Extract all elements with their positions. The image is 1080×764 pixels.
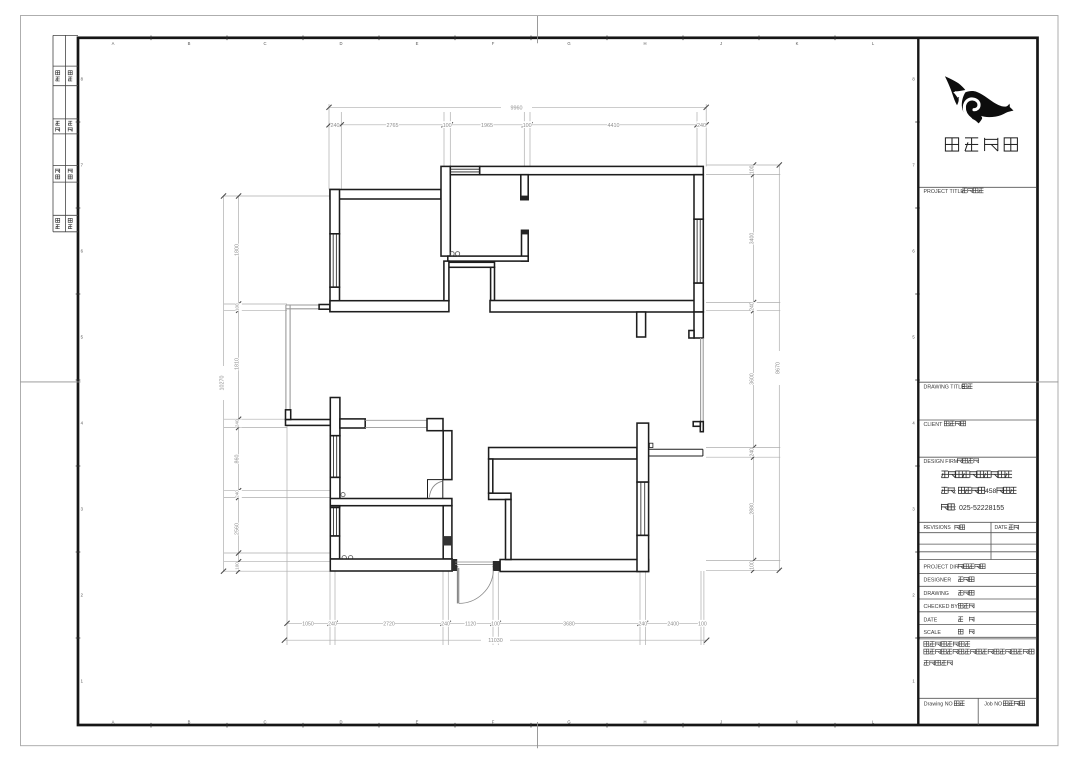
svg-text:K: K xyxy=(796,41,799,46)
svg-text:240: 240 xyxy=(638,621,647,627)
svg-text:D: D xyxy=(339,719,342,724)
svg-text:100: 100 xyxy=(491,621,500,627)
svg-text:3600: 3600 xyxy=(750,373,756,385)
svg-text:025-52228155: 025-52228155 xyxy=(959,505,1004,512)
svg-text:G: G xyxy=(567,719,570,724)
svg-text:F: F xyxy=(492,719,495,724)
svg-text:100: 100 xyxy=(443,123,452,129)
svg-text::: : xyxy=(955,488,957,495)
svg-text:Job NO: Job NO xyxy=(984,702,1002,708)
svg-text:SCALE: SCALE xyxy=(924,630,942,636)
svg-text:240: 240 xyxy=(750,302,756,311)
svg-text:B: B xyxy=(188,41,191,46)
svg-text:E: E xyxy=(416,41,419,46)
svg-text:K: K xyxy=(796,719,799,724)
svg-text:DATE: DATE xyxy=(924,617,938,623)
svg-text:1810: 1810 xyxy=(235,358,241,370)
svg-text:E: E xyxy=(416,719,419,724)
svg-text:2560: 2560 xyxy=(235,523,241,535)
svg-text:100: 100 xyxy=(235,303,240,311)
svg-text:DESIGN FIRM: DESIGN FIRM xyxy=(924,459,959,465)
svg-text:F: F xyxy=(492,41,495,46)
svg-text:240: 240 xyxy=(331,123,340,129)
svg-text:1050: 1050 xyxy=(302,621,314,627)
svg-text:PROJECT TITLE: PROJECT TITLE xyxy=(924,189,965,195)
svg-text:3400: 3400 xyxy=(750,233,756,245)
svg-text:4410: 4410 xyxy=(608,123,620,129)
svg-text:CHECKED BY: CHECKED BY xyxy=(924,604,959,610)
svg-text:H: H xyxy=(643,719,646,724)
svg-text:100: 100 xyxy=(698,621,707,627)
svg-text:240: 240 xyxy=(441,621,450,627)
svg-text:PROJECT DIR: PROJECT DIR xyxy=(924,565,959,571)
svg-text:A: A xyxy=(112,719,115,724)
svg-text::: : xyxy=(955,505,957,512)
svg-text:C: C xyxy=(263,719,266,724)
svg-text:DRAWING TITLE: DRAWING TITLE xyxy=(924,385,966,391)
svg-text:860: 860 xyxy=(235,455,241,464)
svg-text:Drawing NO: Drawing NO xyxy=(924,702,953,708)
svg-text:240: 240 xyxy=(328,621,337,627)
svg-text:REVISIONS: REVISIONS xyxy=(924,525,952,531)
svg-text:100: 100 xyxy=(750,165,756,174)
svg-text:1800: 1800 xyxy=(235,244,241,256)
svg-text:C: C xyxy=(263,41,266,46)
svg-text:2765: 2765 xyxy=(387,123,399,129)
svg-text:240: 240 xyxy=(697,123,706,129)
svg-text:J: J xyxy=(720,719,722,724)
svg-text:B: B xyxy=(188,719,191,724)
svg-text:100: 100 xyxy=(235,562,240,570)
svg-text:10270: 10270 xyxy=(220,376,226,391)
svg-text:J: J xyxy=(720,41,722,46)
svg-text:240: 240 xyxy=(235,419,240,427)
svg-text:100: 100 xyxy=(523,123,532,129)
svg-text:2880: 2880 xyxy=(750,503,756,515)
svg-text:100: 100 xyxy=(750,561,756,570)
svg-text:DRAWING: DRAWING xyxy=(924,591,949,597)
svg-text:G: G xyxy=(567,41,570,46)
svg-text:2720: 2720 xyxy=(383,621,395,627)
svg-text:8670: 8670 xyxy=(775,362,781,374)
svg-text:9960: 9960 xyxy=(511,105,523,111)
svg-text:2400: 2400 xyxy=(667,621,679,627)
svg-text:A: A xyxy=(112,41,115,46)
svg-text:D: D xyxy=(339,41,342,46)
svg-text:DATE: DATE xyxy=(995,525,1009,531)
svg-text:DESIGNER: DESIGNER xyxy=(924,578,952,584)
svg-text:240: 240 xyxy=(235,490,240,498)
svg-text:240: 240 xyxy=(750,448,756,457)
svg-text:1120: 1120 xyxy=(465,621,476,627)
svg-text:3680: 3680 xyxy=(563,621,575,627)
svg-text:H: H xyxy=(643,41,646,46)
svg-text:CLIENT: CLIENT xyxy=(924,422,944,428)
svg-text:11030: 11030 xyxy=(488,638,503,644)
svg-text:1965: 1965 xyxy=(481,123,493,129)
svg-text:458: 458 xyxy=(985,488,997,495)
